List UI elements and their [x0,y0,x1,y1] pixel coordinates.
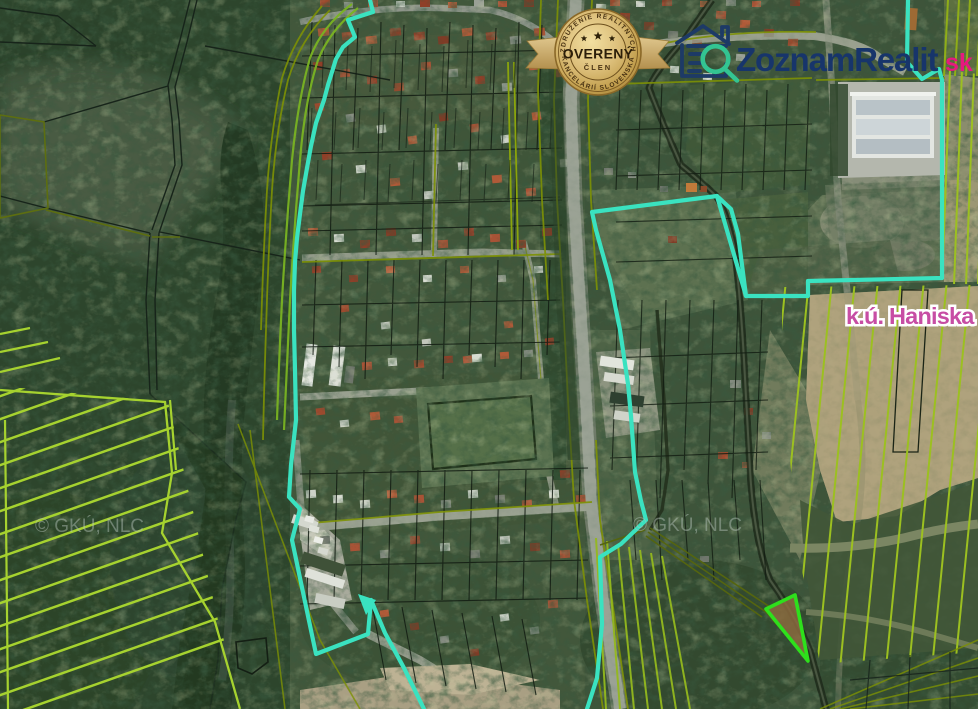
svg-text:© GKÚ, NLC: © GKÚ, NLC [633,514,742,536]
svg-text:© GKÚ, NLC: © GKÚ, NLC [35,515,144,537]
svg-text:ZoznamRealit: ZoznamRealit [736,41,938,78]
svg-text:OVERENÝ: OVERENÝ [563,45,634,62]
svg-text:ČLEN: ČLEN [584,63,612,72]
svg-text:sk: sk [945,49,973,77]
svg-text:k.ú. Haniska: k.ú. Haniska [846,303,975,329]
